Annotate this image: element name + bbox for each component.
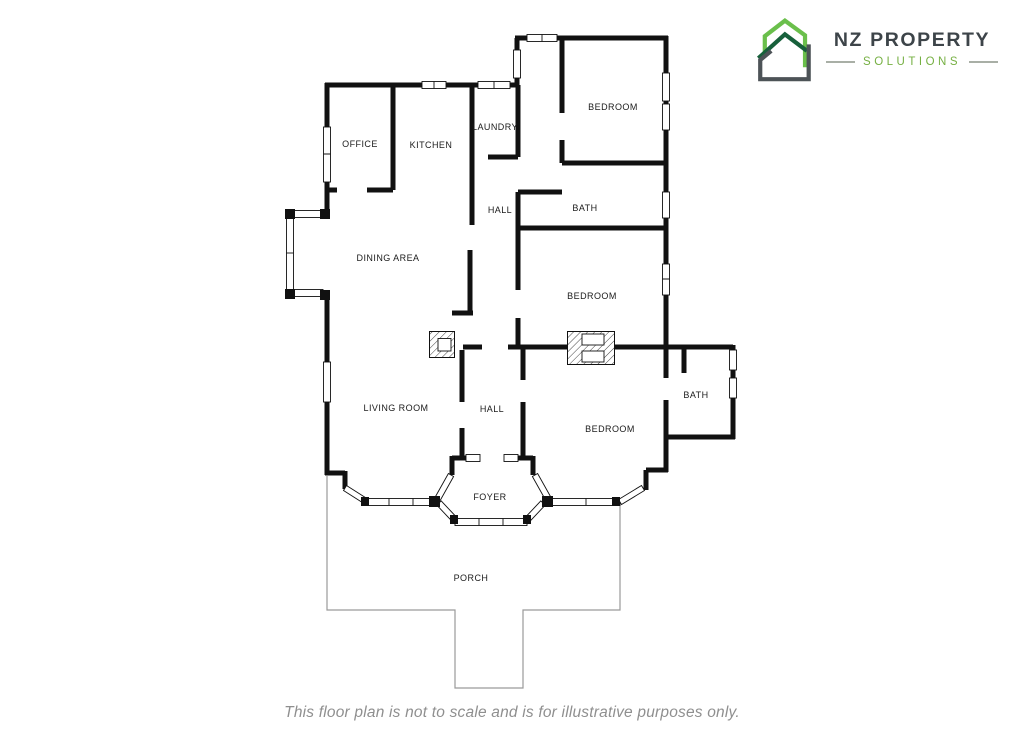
room-label-porch: PORCH xyxy=(454,573,489,583)
room-label-hall-lower: HALL xyxy=(480,404,504,414)
room-label-bedroom-bottom: BEDROOM xyxy=(585,424,635,434)
room-label-living-room: LIVING ROOM xyxy=(364,403,429,413)
room-label-laundry: LAUNDRY xyxy=(472,122,518,132)
room-label-foyer: FOYER xyxy=(473,492,506,502)
logo-dash-left xyxy=(826,61,855,63)
fireplace-living xyxy=(430,332,455,358)
floor-plan: OFFICE KITCHEN LAUNDRY BEDROOM HALL BATH… xyxy=(0,0,1024,731)
room-label-bedroom-mid: BEDROOM xyxy=(567,291,617,301)
walls xyxy=(325,36,735,490)
logo-text: NZ PROPERTY SOLUTIONS xyxy=(826,30,998,67)
fireplace-bedrooms xyxy=(568,332,615,365)
windows xyxy=(324,35,737,526)
room-label-office: OFFICE xyxy=(342,139,378,149)
logo-subtitle: SOLUTIONS xyxy=(863,56,961,68)
house-outline-icon xyxy=(752,16,816,82)
room-label-kitchen: KITCHEN xyxy=(410,140,453,150)
bay-window-dining xyxy=(285,209,330,300)
logo-dash-right xyxy=(969,61,998,63)
logo-title: NZ PROPERTY xyxy=(834,30,990,51)
room-label-dining-area: DINING AREA xyxy=(357,253,420,263)
room-label-hall-upper: HALL xyxy=(488,205,512,215)
disclaimer-text: This floor plan is not to scale and is f… xyxy=(0,704,1024,722)
room-label-bath-right: BATH xyxy=(683,390,708,400)
logo: NZ PROPERTY SOLUTIONS xyxy=(752,16,998,82)
room-label-bedroom-top: BEDROOM xyxy=(588,102,638,112)
room-label-bath-upper: BATH xyxy=(572,203,597,213)
